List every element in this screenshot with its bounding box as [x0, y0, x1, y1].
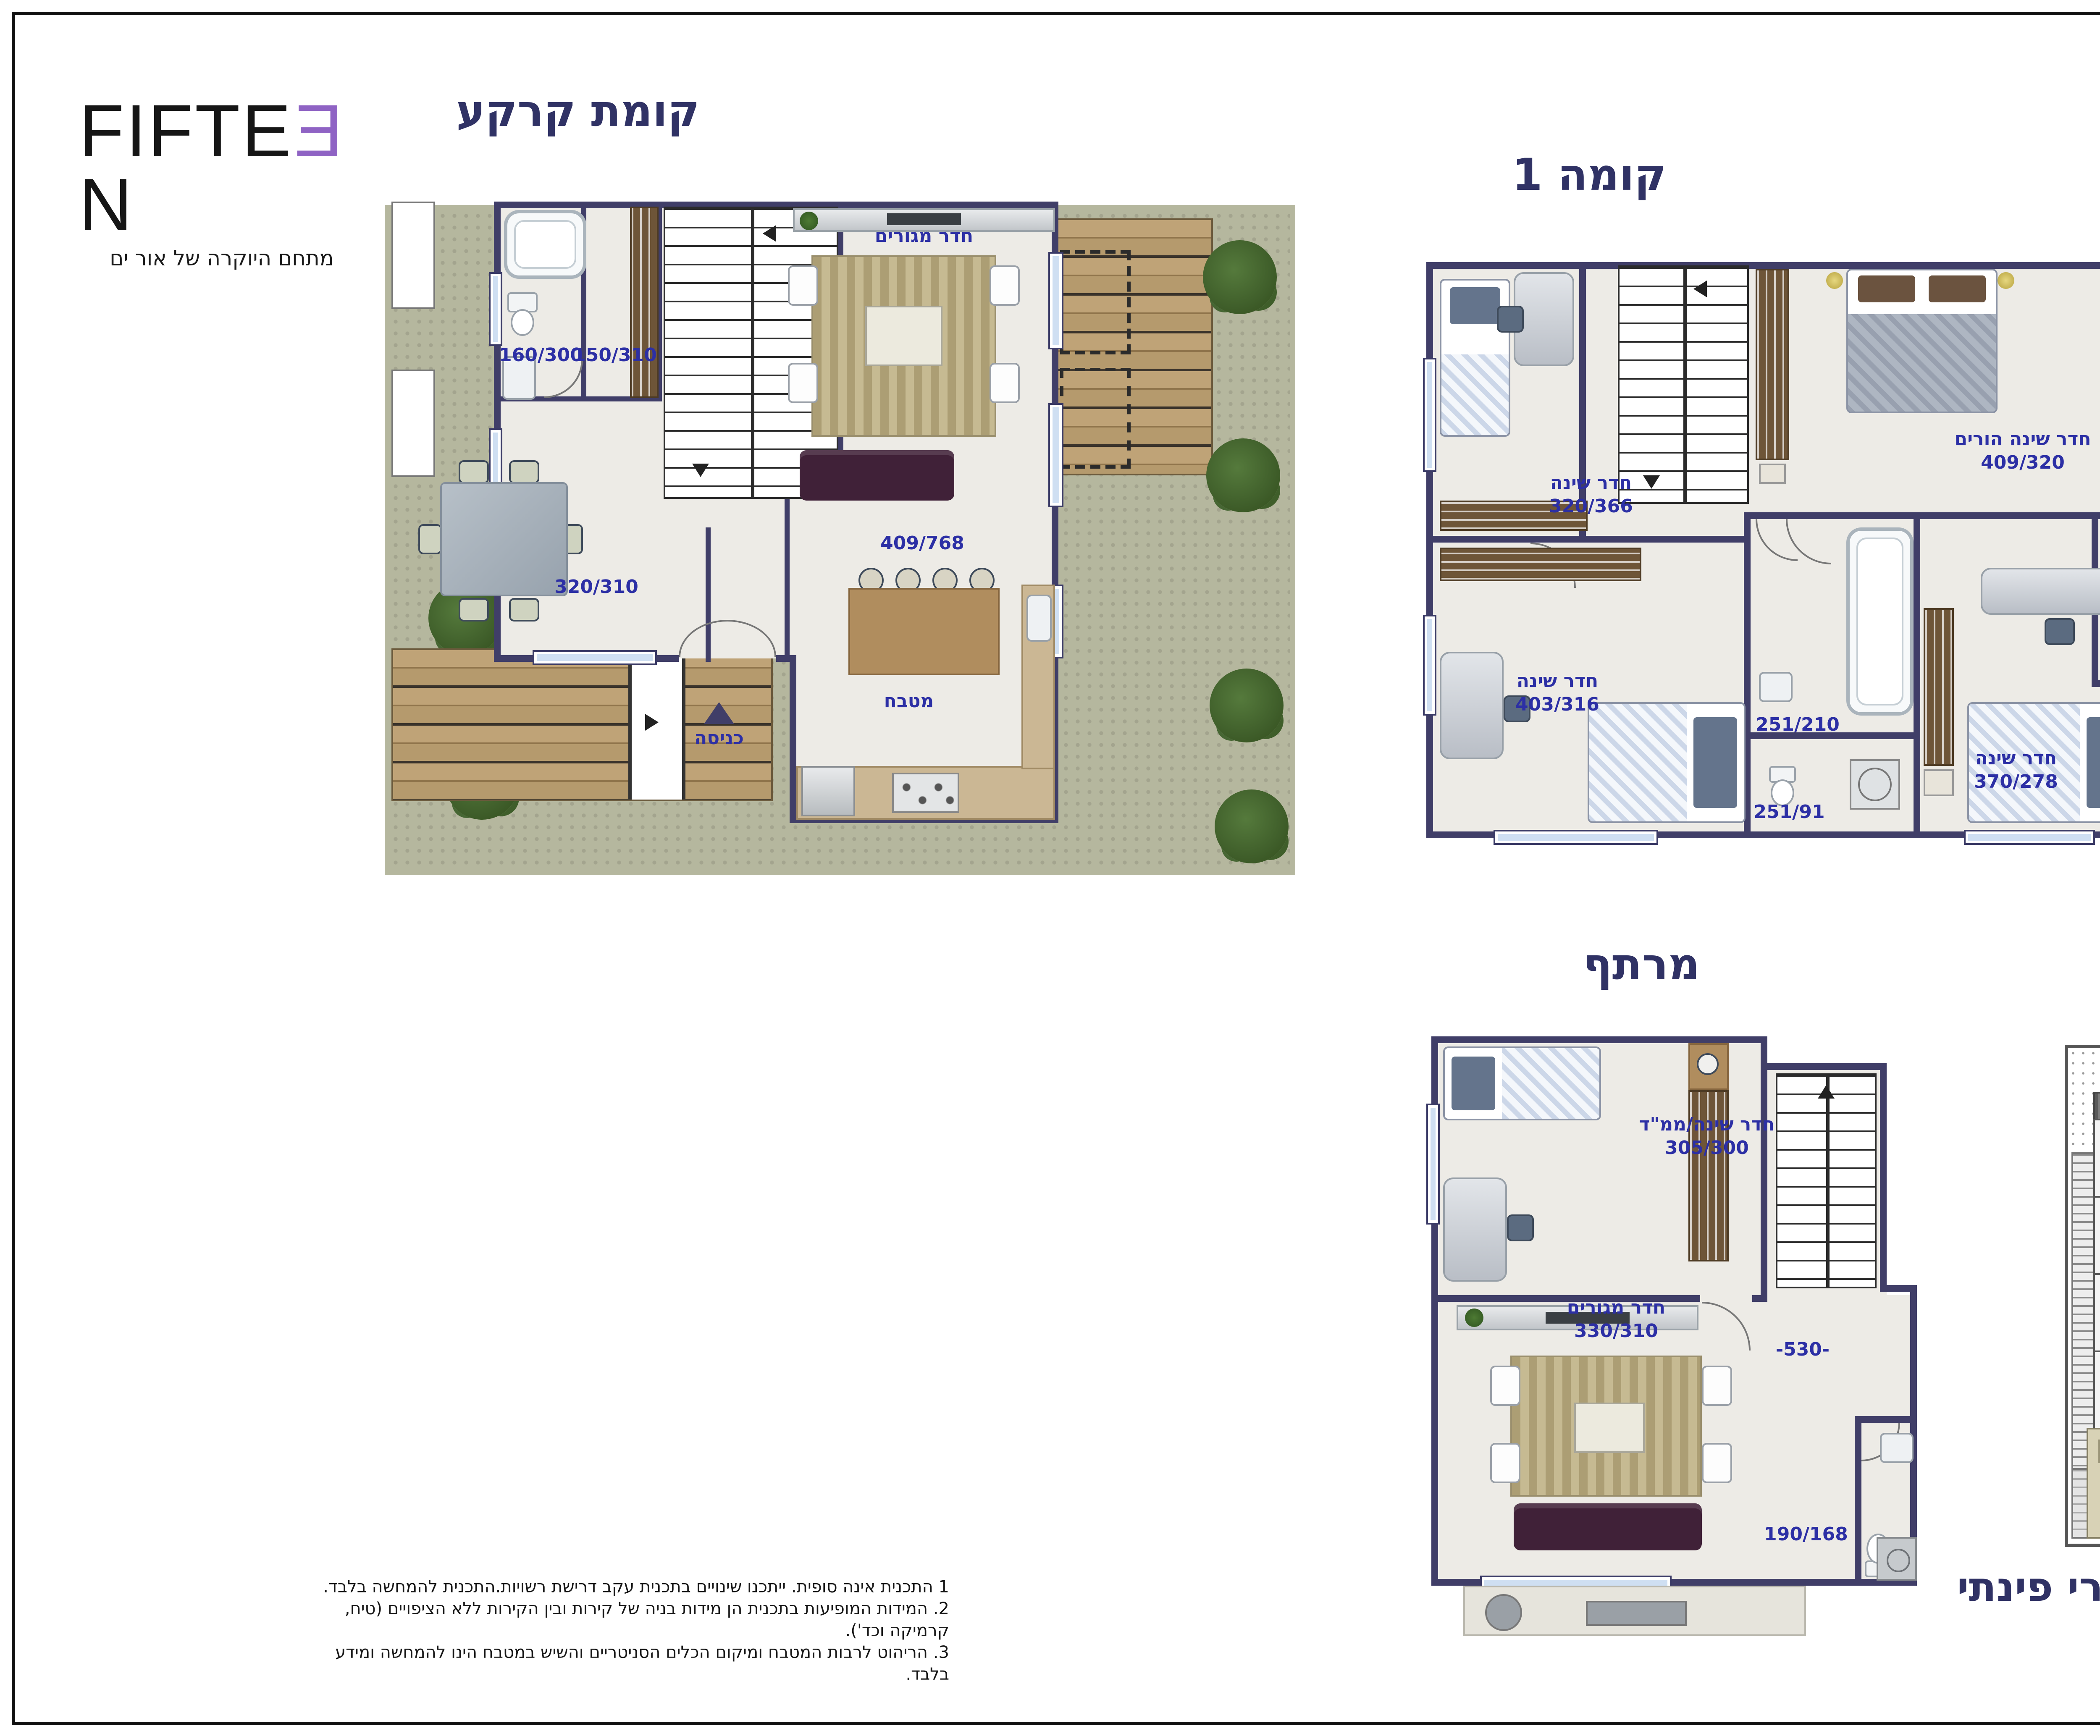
- dining-chair: [509, 460, 539, 484]
- parents-dim-label: 409/320: [1981, 454, 2065, 474]
- armchair: [1702, 1366, 1732, 1406]
- wall: [1744, 512, 2100, 519]
- ground-floor-title: קומת קרקע: [326, 87, 830, 138]
- basement-plan: חדר שינה/ממ"ד 305/300 חדר מגורים 330/310…: [1430, 1036, 1925, 1644]
- dining-dim-label: 320/310: [554, 578, 638, 598]
- living-room-label: חדר מגורים: [875, 227, 974, 247]
- dining-chair: [459, 460, 489, 484]
- coffee-table: [865, 306, 942, 366]
- bed: [1443, 1046, 1601, 1120]
- armchair: [990, 363, 1020, 403]
- wardrobe: [1924, 608, 1954, 766]
- cottage-unit: [2093, 1119, 2100, 1199]
- kitchen-sink: [1026, 595, 1052, 642]
- stairs-arrow-icon: [1643, 475, 1660, 489]
- note-line: 2. המידות המופיעות בתכנית הן מידות בניה …: [311, 1599, 949, 1643]
- garden-patio: [391, 370, 435, 477]
- sofa: [800, 450, 954, 501]
- kitchen-island: [848, 588, 1000, 675]
- dining-chair: [509, 598, 539, 621]
- armchair: [990, 265, 1020, 306]
- plan-sheet: FIFTEEN מתחם היוקרה של אור ים קומת קרקע: [0, 0, 2100, 1736]
- staircase: [1618, 265, 1749, 504]
- bath-dim-label: 251/210: [1756, 716, 1840, 736]
- bathtub: [504, 210, 586, 279]
- bedroom-dim-label: 370/278: [1974, 773, 2058, 793]
- staircase: [1776, 1073, 1877, 1288]
- armchair: [1490, 1443, 1520, 1483]
- mamad-label: חדר שינה/ממ"ד: [1639, 1115, 1775, 1135]
- armchair: [1702, 1443, 1732, 1483]
- wall: [1426, 262, 2100, 269]
- coffee-table: [1574, 1403, 1645, 1453]
- armchair: [1490, 1366, 1520, 1406]
- stairs-arrow-icon: [692, 464, 709, 477]
- entrance-arrow-icon: [704, 702, 734, 724]
- bush: [1215, 789, 1289, 863]
- wall: [1426, 262, 1433, 838]
- living-dim-label: 330/310: [1574, 1322, 1658, 1342]
- bedroom-label: חדר שינה: [1550, 474, 1632, 494]
- window: [1964, 830, 2095, 845]
- plant-icon: [1465, 1309, 1483, 1327]
- wall: [1431, 1036, 1767, 1043]
- desk: [1443, 1177, 1507, 1282]
- level-label: -530-: [1776, 1340, 1830, 1361]
- entrance-label: כניסה: [694, 729, 744, 749]
- window: [1048, 252, 1063, 349]
- window: [1423, 615, 1436, 716]
- parents-room-label: חדר שינה הורים: [1954, 430, 2091, 450]
- tv-icon: [887, 213, 961, 225]
- bathtub: [1846, 527, 1914, 716]
- plan-notes: 1 התכנית אינה סופית. ייתכנו שינויים בתכנ…: [311, 1577, 949, 1686]
- wc-dim-label: 251/91: [1753, 803, 1824, 823]
- desk: [1440, 652, 1504, 759]
- double-bed: [1846, 269, 1998, 413]
- bath-dim-label: 160/300: [499, 346, 583, 366]
- fifteen-tagline: מתחם היוקרה של אור ים: [79, 245, 365, 270]
- fifteen-wordmark-suffix: N: [79, 165, 134, 247]
- window: [1494, 830, 1658, 845]
- bedroom-label: חדר שינה: [1975, 749, 2057, 769]
- dining-chair: [418, 524, 442, 554]
- wall: [1855, 1416, 1861, 1586]
- stairs-arrow-icon: [763, 225, 776, 242]
- sink: [1880, 1433, 1914, 1463]
- window: [1426, 1104, 1440, 1225]
- vanity-seat: [1924, 769, 1954, 796]
- bench: [1586, 1601, 1687, 1626]
- wall: [1914, 519, 1920, 838]
- bush: [1206, 438, 1280, 512]
- highlighted-unit: [2087, 1428, 2100, 1539]
- wall: [790, 655, 796, 823]
- desk-chair: [1497, 306, 1524, 333]
- dining-table: [440, 482, 568, 596]
- wardrobe: [630, 207, 659, 398]
- stairs-arrow-icon: [1693, 281, 1707, 297]
- bedroom-label: חדר שינה: [1517, 672, 1598, 692]
- wardrobe: [1756, 269, 1789, 460]
- unit-type-label: קוטג' טורי פינתי: [1856, 1564, 2100, 1611]
- bedroom-dim-label: 320/366: [1549, 497, 1633, 517]
- lamp-icon: [1998, 272, 2014, 289]
- steps-direction-arrow-icon: [645, 714, 659, 731]
- sofa: [1514, 1503, 1702, 1550]
- closet-dim-label: 150/310: [573, 346, 657, 366]
- wall: [1426, 536, 1751, 543]
- bed: [1588, 702, 1746, 823]
- bed: [1440, 279, 1510, 437]
- terrace: [1463, 1586, 1806, 1636]
- vanity-seat: [1759, 464, 1786, 484]
- driveway: [2071, 1152, 2097, 1471]
- wall: [1880, 1063, 1887, 1292]
- stairs-arrow-icon: [1818, 1085, 1835, 1099]
- sink: [1759, 672, 1793, 702]
- living-room-label: חדר מגורים: [1567, 1298, 1666, 1319]
- armchair: [788, 265, 818, 306]
- stove: [892, 773, 959, 813]
- wardrobe: [1440, 548, 1641, 581]
- desk-chair: [1697, 1053, 1719, 1075]
- lamp-icon: [1826, 272, 1843, 289]
- desk-chair: [1507, 1214, 1534, 1241]
- appliance: [801, 766, 855, 816]
- pergola-outline: [1060, 368, 1131, 469]
- window: [1048, 403, 1063, 507]
- deck-bottom-left: [391, 648, 773, 801]
- note-line: 3. הריהוט לרבות המטבח ומיקום הכלים הסניט…: [311, 1643, 949, 1686]
- cottage-unit: [2093, 1273, 2100, 1354]
- deck-top-right: [1045, 218, 1213, 475]
- washing-machine: [1850, 759, 1900, 810]
- roof-strip: [2093, 1092, 2100, 1122]
- note-line: 1 התכנית אינה סופית. ייתכנו שינויים בתכנ…: [311, 1577, 949, 1599]
- cottage-unit: [2093, 1351, 2100, 1431]
- basement-title: מרתף: [1389, 941, 1893, 991]
- armchair: [788, 363, 818, 403]
- wall: [1767, 1063, 1887, 1070]
- site-plan: [2065, 1045, 2100, 1547]
- bush: [1210, 669, 1284, 742]
- window: [533, 650, 657, 665]
- window: [489, 272, 502, 346]
- floor1-plan: חדר שינה 320/366 חדר שינה הורים 409/320 …: [1426, 262, 2100, 843]
- garden-patio: [391, 202, 435, 309]
- wall: [1752, 1295, 1767, 1302]
- desk-chair: [2045, 618, 2075, 645]
- mamad-dim-label: 305/300: [1665, 1139, 1749, 1159]
- fifteen-wordmark: FIFTEEN: [79, 96, 365, 244]
- bush: [1203, 240, 1277, 314]
- plant-icon: [800, 212, 818, 230]
- living-dim-label: 409/768: [880, 534, 964, 554]
- cottage-unit: [2093, 1196, 2100, 1277]
- dining-chair: [459, 598, 489, 621]
- desk: [1981, 568, 2100, 615]
- floor1-title: קומה 1: [1337, 151, 1841, 202]
- ground-floor-plan: חדר מגורים 409/768 320/310 מטבח כניסה 16…: [385, 205, 1295, 875]
- pergola-outline: [1060, 250, 1131, 354]
- window: [1423, 358, 1436, 472]
- bath-dim-label: 190/168: [1764, 1525, 1848, 1545]
- wall: [2092, 680, 2100, 687]
- wall: [1855, 1416, 1917, 1423]
- round-table: [1485, 1594, 1522, 1631]
- bedroom-dim-label: 403/316: [1515, 695, 1599, 716]
- fifteen-logo: FIFTEEN מתחם היוקרה של אור ים: [79, 96, 365, 270]
- toilet-bowl: [511, 309, 534, 336]
- fifteen-wordmark-prefix: FIFTE: [79, 91, 293, 173]
- wall: [1761, 1036, 1767, 1302]
- kitchen-label: מטבח: [884, 692, 934, 712]
